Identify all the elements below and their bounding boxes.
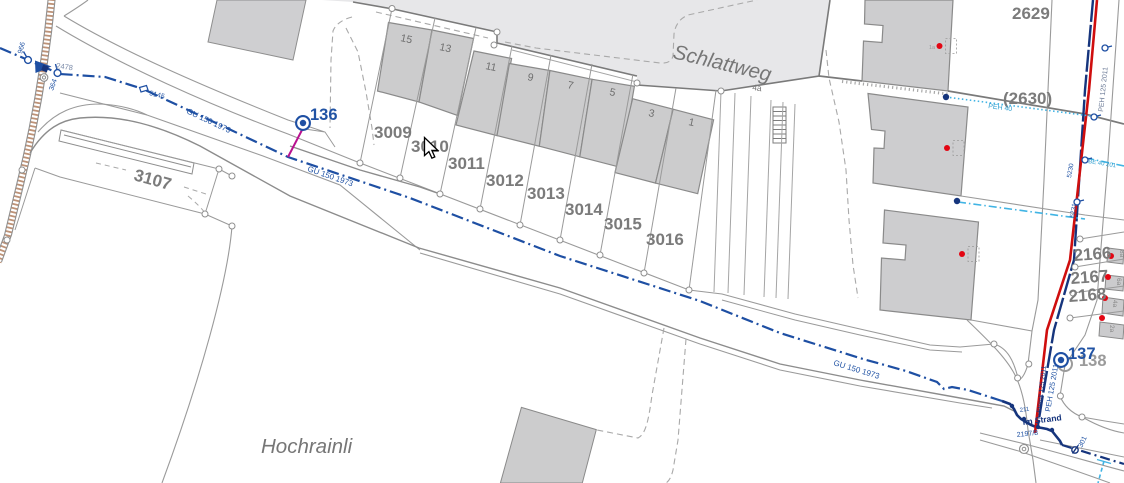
svg-text:3015: 3015 xyxy=(604,215,642,234)
svg-text:2629: 2629 xyxy=(1012,4,1050,23)
svg-text:2168: 2168 xyxy=(1068,284,1107,306)
svg-text:136: 136 xyxy=(310,106,338,124)
svg-text:2a: 2a xyxy=(1108,325,1115,333)
svg-text:3012: 3012 xyxy=(486,171,524,190)
svg-text:4a: 4a xyxy=(1111,300,1118,308)
svg-text:8a: 8a xyxy=(1118,250,1124,258)
svg-text:3013: 3013 xyxy=(527,184,565,203)
svg-text:1a: 1a xyxy=(929,45,936,51)
svg-text:6a: 6a xyxy=(1115,278,1122,286)
svg-text:3009: 3009 xyxy=(374,123,412,142)
svg-text:3011: 3011 xyxy=(448,154,485,173)
svg-text:137: 137 xyxy=(1068,345,1096,363)
svg-text:Hochrainli: Hochrainli xyxy=(261,435,354,458)
svg-text:3016: 3016 xyxy=(646,230,684,249)
svg-text:2166: 2166 xyxy=(1073,243,1112,265)
svg-text:3014: 3014 xyxy=(565,200,603,219)
